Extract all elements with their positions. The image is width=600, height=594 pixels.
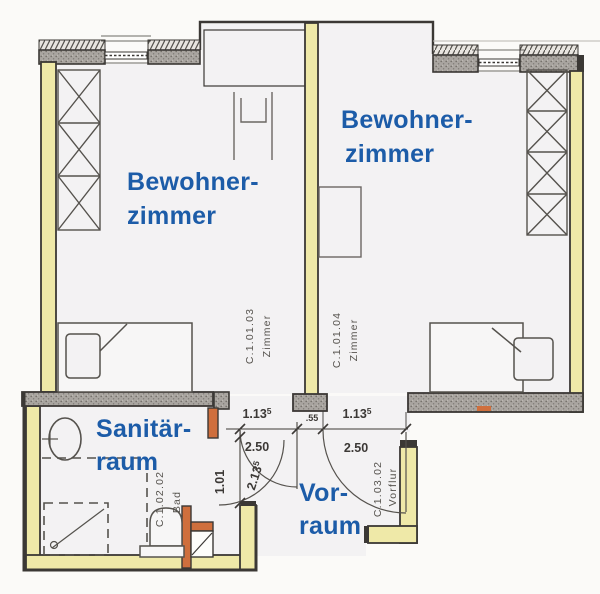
- wall-corner-cap: [577, 55, 584, 72]
- code-bedroom-right: C.1.01.04: [331, 312, 343, 368]
- top-wall-right: [433, 45, 584, 72]
- code-type-sanitary: Bad: [171, 491, 183, 513]
- bath-wall-arm: [191, 522, 213, 531]
- code-type-hall: Vorflur: [387, 468, 399, 507]
- anteroom-label-line1: Vor-: [299, 479, 348, 507]
- floor-areas: [26, 24, 571, 557]
- bedroom-left-label-line1: Bewohner-: [127, 168, 259, 196]
- sanitary-label-line2: raum: [96, 448, 158, 476]
- wall-right: [570, 71, 583, 412]
- dim-bath-door: 1.01: [213, 470, 227, 494]
- floor-plan: Bewohner- zimmer Bewohner- zimmer Sanitä…: [0, 0, 600, 594]
- dim-width-right: 2.50: [344, 441, 368, 455]
- wall-left: [41, 62, 56, 392]
- bedroom-right-label-line1: Bewohner-: [341, 106, 473, 134]
- code-sanitary: C.1.02.02: [154, 471, 166, 527]
- wall-partition: [305, 23, 318, 395]
- anteroom-label-line2: raum: [299, 512, 361, 540]
- wall-bedroom-right-bottom: [408, 393, 583, 412]
- window-left: [101, 36, 151, 63]
- wall-bath-top: [22, 392, 213, 406]
- sanitary-label-line1: Sanitär-: [96, 415, 191, 443]
- code-hall: C.1.03.02: [372, 461, 384, 517]
- window-right: [472, 50, 526, 71]
- pier-small: [214, 392, 229, 409]
- bath-wall-post: [182, 506, 191, 568]
- dim-pillar: .55: [306, 413, 319, 423]
- bath-door-jamb: [208, 408, 218, 438]
- code-type-bedroom-right: Zimmer: [348, 319, 360, 362]
- wall-bath-left: [26, 406, 40, 557]
- wall-hall-bottom: [368, 526, 417, 543]
- code-bedroom-left: C.1.01.03: [244, 308, 256, 364]
- pier-center: [293, 394, 327, 411]
- wall-anteroom-left-stub: [240, 505, 256, 570]
- dim-width-left: 2.50: [245, 440, 269, 454]
- top-wall-left: [39, 36, 200, 64]
- bedroom-left-label-line2: zimmer: [127, 202, 216, 230]
- duct-shaft: [191, 531, 213, 557]
- code-type-bedroom-left: Zimmer: [261, 315, 273, 358]
- floor-plan-drawing: Bewohner- zimmer Bewohner- zimmer Sanitä…: [0, 0, 600, 594]
- bedroom-right-label-line2: zimmer: [345, 140, 434, 168]
- threshold-mark: [477, 406, 491, 411]
- bed-left-icon: [58, 323, 192, 392]
